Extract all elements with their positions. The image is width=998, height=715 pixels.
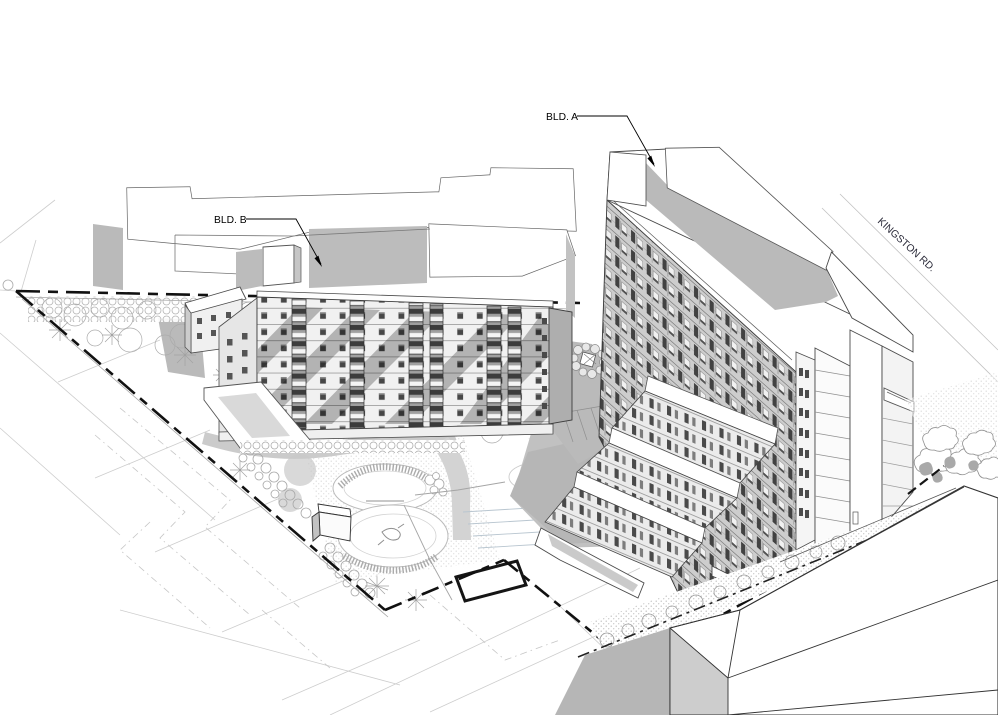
- svg-text:BLD. B: BLD. B: [214, 215, 247, 226]
- svg-text:BLD. A: BLD. A: [546, 112, 578, 123]
